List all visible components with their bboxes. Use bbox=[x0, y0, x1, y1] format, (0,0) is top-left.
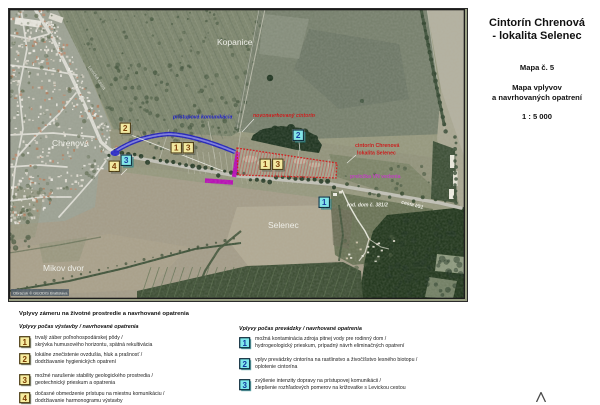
svg-text:1: 1 bbox=[22, 338, 27, 347]
svg-text:3: 3 bbox=[22, 376, 27, 385]
svg-text:2: 2 bbox=[22, 355, 27, 364]
svg-text:1: 1 bbox=[242, 339, 247, 348]
svg-text:3: 3 bbox=[242, 381, 247, 390]
svg-text:2: 2 bbox=[242, 360, 247, 369]
